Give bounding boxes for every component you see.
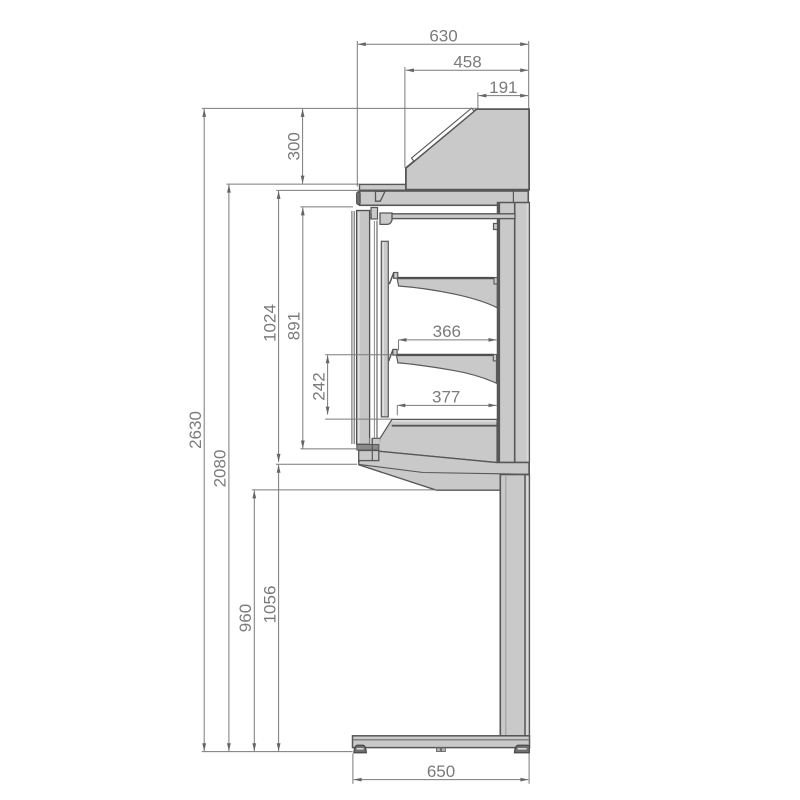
svg-text:650: 650 — [427, 762, 455, 781]
svg-text:242: 242 — [309, 372, 328, 400]
svg-text:191: 191 — [489, 78, 517, 97]
svg-text:300: 300 — [284, 132, 303, 160]
svg-text:366: 366 — [433, 322, 461, 341]
svg-text:891: 891 — [285, 312, 304, 340]
svg-text:2080: 2080 — [211, 450, 230, 488]
svg-text:2630: 2630 — [186, 411, 205, 449]
svg-text:960: 960 — [236, 604, 255, 632]
svg-text:458: 458 — [453, 53, 481, 72]
svg-text:630: 630 — [429, 26, 457, 45]
svg-text:1056: 1056 — [260, 586, 279, 624]
svg-text:1024: 1024 — [260, 304, 279, 342]
svg-text:377: 377 — [432, 388, 460, 407]
